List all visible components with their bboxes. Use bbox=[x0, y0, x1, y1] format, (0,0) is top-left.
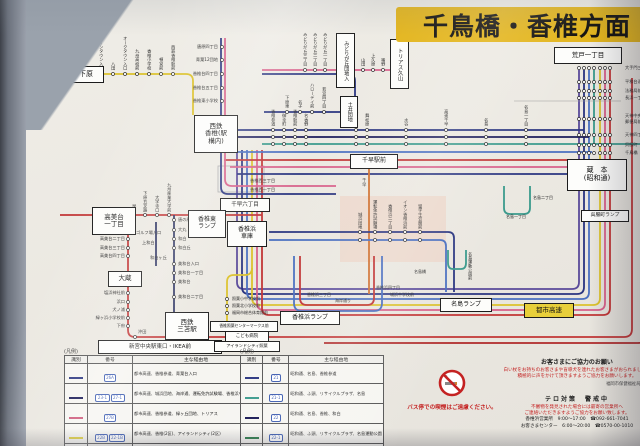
station-label: 城浜団地 bbox=[358, 212, 362, 229]
station-label: 名子 bbox=[298, 100, 302, 108]
station-label: 水谷 bbox=[404, 118, 408, 126]
security-office-row: 香椎浜営業所 9:00～17:00 ☎092-661-7041 bbox=[492, 417, 640, 424]
station-label: 留学生会館前 bbox=[418, 204, 422, 229]
station-label: 平和台通り bbox=[625, 80, 640, 84]
station-label: 下原五叉路 bbox=[143, 191, 147, 212]
station-box-toshi-kosoku: 都市高速 bbox=[524, 303, 574, 318]
legend-cell: 26A bbox=[88, 364, 133, 384]
legend-row: 22B22-1B都市高速、香椎(2区)、アイランドシティ(2区) bbox=[65, 424, 260, 444]
station-label: 城浜中学校前 bbox=[390, 293, 414, 297]
station-label: ハローデイ前 bbox=[310, 83, 314, 108]
station-label: 緑ヶ浜小学校前 bbox=[96, 316, 125, 320]
station-label: 御幸町 bbox=[282, 113, 286, 126]
legend-via-text: 昭和通、ふ頭、リサイクルプラザ、名島運動公園 bbox=[289, 424, 384, 444]
station-box-label: 香椎照葉センターマークス前 bbox=[219, 324, 268, 328]
station-label: 香椎浜二丁目 bbox=[388, 204, 392, 229]
station-box-label: 大蔵 bbox=[119, 275, 132, 282]
route-number-badge: 22B bbox=[95, 434, 108, 442]
station-label: 浜口 bbox=[117, 300, 125, 304]
legend-cell bbox=[65, 364, 88, 384]
station-box-gofukumachi-ramp: 呉服町ランプ bbox=[581, 210, 629, 222]
station-box-doi-danchi: 土井団地 bbox=[340, 96, 358, 128]
legend-row: 27B都市高速、香椎参道、緑ヶ丘団地、トリアス bbox=[65, 404, 260, 424]
station-label: 下府 bbox=[117, 324, 125, 328]
poster-title-banner: 千鳥橋・香椎方面 bbox=[396, 7, 640, 42]
legend-row: 26A都市高速、香椎参道、青葉台入口 bbox=[65, 364, 260, 384]
legend-row: 23-127-1都市高速、城浜団地、海岸通、運転免許試験場、香椎浜中学校 bbox=[65, 384, 260, 404]
station-label: 香椎参道 bbox=[271, 109, 275, 126]
legend-color-swatch bbox=[245, 417, 259, 419]
station-label: 香椎浜四丁目 bbox=[376, 286, 400, 290]
station-label: 上和白 bbox=[142, 241, 155, 245]
station-label: 香椎浜三丁目 bbox=[307, 293, 331, 297]
station-label: 名香野 bbox=[304, 113, 308, 126]
cooperation-line1: 白い杖をお持ちのお客さまや盲導犬を連れたお客さまがおられましたら bbox=[492, 368, 640, 374]
station-label: 高美台四丁目 bbox=[100, 254, 125, 258]
security-notice: テロ対策 警戒中 不審物を発見された場合には最寄の営業所へ ご連絡いただきますよ… bbox=[492, 394, 640, 430]
station-box-label: 構内) bbox=[208, 138, 224, 145]
station-box-label: 千早六丁目 bbox=[231, 202, 259, 208]
station-box-label: ランプ bbox=[198, 224, 216, 231]
legend-cell bbox=[65, 404, 88, 424]
legend-center-header-number: 番号 bbox=[263, 356, 289, 364]
legend-color-swatch bbox=[245, 437, 259, 439]
cooperation-heading: お客さまにご協力のお願い bbox=[492, 357, 640, 366]
legend-via-text: 昭和通、名島、香椎参道 bbox=[289, 364, 384, 384]
station-box-label: 香椎浜ランプ bbox=[292, 315, 328, 322]
station-label: 香椎西三丁目 bbox=[250, 179, 275, 183]
poster-title: 千鳥橋・香椎方面 bbox=[423, 7, 631, 43]
legend-row: 22-1昭和通、ふ頭、リサイクルプラザ、名島運動公園 bbox=[241, 424, 384, 444]
station-label: 法務局前 bbox=[625, 89, 640, 93]
legend-center-header-color: 識別 bbox=[241, 356, 263, 364]
station-box-label: 車庫 bbox=[241, 234, 253, 241]
station-label: 千早 bbox=[362, 178, 366, 186]
legend-left-header-color: 識別 bbox=[65, 356, 88, 364]
legend-cell bbox=[241, 424, 263, 444]
cooperation-notice: お客さまにご協力のお願い 白い杖をお持ちのお客さまや盲導犬を連れたお客さまがおら… bbox=[492, 357, 640, 387]
legend-center-note: (凡例) bbox=[240, 348, 254, 355]
station-box-shingu-ikea: 新宮中央駅東口・IKEA前 bbox=[98, 340, 222, 354]
station-label: 千鳥橋 bbox=[625, 151, 638, 155]
legend-via-text: 昭和通、名島、香椎、和白 bbox=[289, 404, 384, 424]
station-label: 海岸通り bbox=[335, 299, 351, 303]
station-label: 沖田 bbox=[138, 330, 146, 334]
legend-left-header-number: 番号 bbox=[88, 356, 133, 364]
legend-table-center: 識別 番号 主な経由地 21昭和通、名島、香椎参道21-1昭和通、ふ頭、リサイク… bbox=[240, 355, 384, 446]
station-box-kashii-higashi-ramp: 香椎東ランプ bbox=[188, 210, 226, 238]
station-box-label: 土井団地 bbox=[346, 102, 352, 122]
station-label: 高美台二丁目 bbox=[100, 237, 125, 241]
station-box-okura: 大蔵 bbox=[108, 271, 142, 287]
station-box-label: 名島ランプ bbox=[451, 302, 481, 309]
station-label: 唐原四丁目 bbox=[197, 45, 218, 49]
station-label: 天神中央 bbox=[625, 114, 640, 118]
wall-corner bbox=[0, 0, 200, 130]
legend-row: 21-1昭和通、ふ頭、リサイクルプラザ、名島 bbox=[241, 384, 384, 404]
station-label: 呉服町 bbox=[625, 143, 638, 147]
station-box-label: トリアス久山 bbox=[396, 48, 402, 81]
station-label: 名島二丁目 bbox=[533, 196, 553, 200]
station-label: 犬ノ浦 bbox=[112, 308, 125, 312]
legend-cell: 22-1 bbox=[263, 424, 289, 444]
legend-color-swatch bbox=[69, 377, 83, 379]
station-label: 和白ヶ丘 bbox=[150, 256, 167, 260]
route-number-badge: 27B bbox=[104, 414, 117, 422]
station-label: 香椎駅前 bbox=[293, 109, 297, 126]
station-label: 和白 bbox=[178, 237, 186, 241]
legend-table-left: 識別 番号 主な経由地 26A都市高速、香椎参道、青葉台入口23-127-1都市… bbox=[64, 355, 260, 446]
legend-cell: 23-127-1 bbox=[88, 384, 133, 404]
station-label: 名島 bbox=[484, 118, 488, 126]
station-label: 和白丘 bbox=[178, 246, 191, 250]
legend-cell: 21 bbox=[263, 364, 289, 384]
route-number-badge: 21 bbox=[271, 374, 281, 382]
station-label: 名島橋 bbox=[414, 270, 426, 274]
station-label: 長浜一丁目 bbox=[625, 96, 640, 100]
station-box-arato-1chome: 荒戸一丁目 bbox=[554, 47, 622, 64]
station-label: 天神四丁目 bbox=[625, 133, 640, 137]
station-box-takamidai-1chome: 高美台一丁目 bbox=[92, 207, 136, 235]
station-box-label: 一丁目 bbox=[104, 221, 124, 228]
station-box-label: 千早駅前 bbox=[362, 158, 386, 165]
photo-scene: 下原西鉄香椎(駅構内)千早駅前千早六丁目香椎東ランプ香椎浜車庫高美台一丁目大蔵西… bbox=[0, 0, 640, 446]
station-box-label: こども病院 bbox=[236, 334, 259, 339]
station-label: みどりが丘二丁目 bbox=[313, 32, 317, 66]
route-number-badge: 27-1 bbox=[111, 394, 125, 402]
legend-cell bbox=[241, 384, 263, 404]
station-label: 名島運動公園前 bbox=[468, 252, 472, 280]
station-label: 香椎西一丁目 bbox=[250, 188, 275, 192]
station-label: 運転免許試験場 bbox=[373, 200, 377, 229]
legend-center-body: 21昭和通、名島、香椎参道21-1昭和通、ふ頭、リサイクルプラザ、名島22昭和通… bbox=[241, 364, 384, 446]
legend-row: 22昭和通、名島、香椎、和白 bbox=[241, 404, 384, 424]
legend-center-header-via: 主な経由地 bbox=[289, 356, 384, 364]
station-label: 美和台 bbox=[178, 280, 191, 284]
legend-cell: 22B22-1B bbox=[88, 424, 133, 444]
station-label: 大学寺口 bbox=[155, 195, 159, 212]
legend-cell: 21-1 bbox=[263, 384, 289, 404]
station-label: みどりが丘一丁目 bbox=[323, 32, 327, 66]
legend-via-text: 昭和通、ふ頭、リサイクルプラザ、名島 bbox=[289, 384, 384, 404]
station-label: 美和台二丁目 bbox=[178, 295, 203, 299]
legend-left-note: (凡例) bbox=[64, 348, 78, 355]
station-box-label: 新宮中央駅東口・IKEA前 bbox=[129, 344, 191, 350]
legend-cell: 27B bbox=[88, 404, 133, 424]
route-number-badge: 22-1 bbox=[269, 434, 283, 442]
station-label: 照葉小中学校前 bbox=[232, 297, 260, 301]
legend-color-swatch bbox=[245, 377, 259, 379]
station-label: 舞松原 bbox=[365, 113, 369, 126]
legend-left-body: 26A都市高速、香椎参道、青葉台入口23-127-1都市高速、城浜団地、海岸通、… bbox=[65, 364, 260, 446]
station-label: 下原東 bbox=[285, 95, 289, 108]
window-frame-edge bbox=[0, 0, 26, 446]
route-number-badge: 23-1 bbox=[95, 394, 109, 402]
station-box-nishitetsu-kashii: 西鉄香椎(駅構内) bbox=[194, 115, 238, 153]
station-label: 塩浜神社前 bbox=[104, 291, 125, 295]
station-label: イオン香椎浜前 bbox=[403, 200, 407, 229]
no-smoking-icon bbox=[438, 369, 466, 397]
legend-cell bbox=[65, 424, 88, 444]
security-heading: テロ対策 警戒中 bbox=[492, 394, 640, 403]
legend-color-swatch bbox=[245, 397, 259, 399]
station-label: みどりが丘三丁目 bbox=[303, 32, 307, 66]
station-label: 九州産業大学前 bbox=[167, 183, 171, 212]
station-box-trias-hisayama: トリアス久山 bbox=[390, 39, 409, 89]
station-label: ゴルフ場入口 bbox=[136, 231, 161, 235]
station-label: 名島一丁目 bbox=[524, 105, 528, 126]
station-box-chihaya-6chome: 千早六丁目 bbox=[220, 198, 270, 212]
station-box-kuramoto: 蔵 本(昭和通) bbox=[567, 159, 627, 191]
legend-color-swatch bbox=[69, 397, 83, 399]
station-label: 美和台一丁目 bbox=[178, 271, 203, 275]
legend-cell: 22 bbox=[263, 404, 289, 424]
route-number-badge: 26A bbox=[104, 374, 117, 382]
station-label: 郵便局前 bbox=[625, 120, 640, 124]
legend-color-swatch bbox=[69, 417, 83, 419]
station-label: 福岡市総合体育館前 bbox=[232, 311, 268, 315]
station-label: 美和台入口 bbox=[178, 262, 199, 266]
station-label: 若宮四丁目 bbox=[322, 87, 326, 108]
station-label: 大丸 bbox=[178, 228, 186, 232]
cooperation-credit: 福岡市保健福祉局・西鉄バス bbox=[492, 381, 640, 387]
station-label: 高美台三丁目 bbox=[100, 246, 125, 250]
legend-color-swatch bbox=[69, 437, 83, 439]
route-number-badge: 21-1 bbox=[269, 394, 283, 402]
security-center-row: お客さまセンター 6:00～20:00 ☎0570-00-1010 bbox=[492, 424, 640, 431]
station-label: 上久原 bbox=[371, 53, 375, 66]
cooperation-line2: 積極的に声をかけて頂きますようご協力をお願いします。 bbox=[492, 374, 640, 380]
station-box-label: 呉服町ランプ bbox=[591, 213, 620, 218]
route-number-badge: 22-1B bbox=[109, 434, 126, 442]
station-box-najima-ramp: 名島ランプ bbox=[440, 298, 492, 312]
station-label: 照葉北小学校前 bbox=[232, 304, 260, 308]
station-box-label: みどりが丘団地入 bbox=[343, 41, 349, 81]
legend-cell bbox=[241, 404, 263, 424]
station-box-kashiihama-ramp: 香椎浜ランプ bbox=[280, 311, 340, 325]
station-box-label: 都市高速 bbox=[536, 307, 562, 314]
station-box-mitoma: 西鉄三苫駅 bbox=[165, 312, 209, 340]
legend-row: 21昭和通、名島、香椎参道 bbox=[241, 364, 384, 384]
station-label: 猪野 bbox=[381, 58, 385, 66]
station-box-chihaya-ekimae: 千早駅前 bbox=[350, 154, 398, 169]
station-box-label: 三苫駅 bbox=[177, 326, 197, 333]
legend-cell bbox=[65, 384, 88, 404]
station-label: 山田 bbox=[361, 58, 365, 66]
station-label: 名島一丁目 bbox=[506, 215, 526, 219]
route-number-badge: 22 bbox=[271, 414, 281, 422]
station-box-midorigaoka-danchi: みどりが丘団地入 bbox=[336, 33, 355, 88]
station-box-label: 荒戸一丁目 bbox=[572, 52, 605, 59]
legend-cell bbox=[241, 364, 263, 384]
station-label: 高速千早 bbox=[444, 109, 448, 126]
station-label: 大手門三丁目 bbox=[625, 66, 640, 70]
station-box-label: (昭和通) bbox=[584, 175, 610, 183]
station-box-kashiihama-shako: 香椎浜車庫 bbox=[227, 221, 267, 247]
